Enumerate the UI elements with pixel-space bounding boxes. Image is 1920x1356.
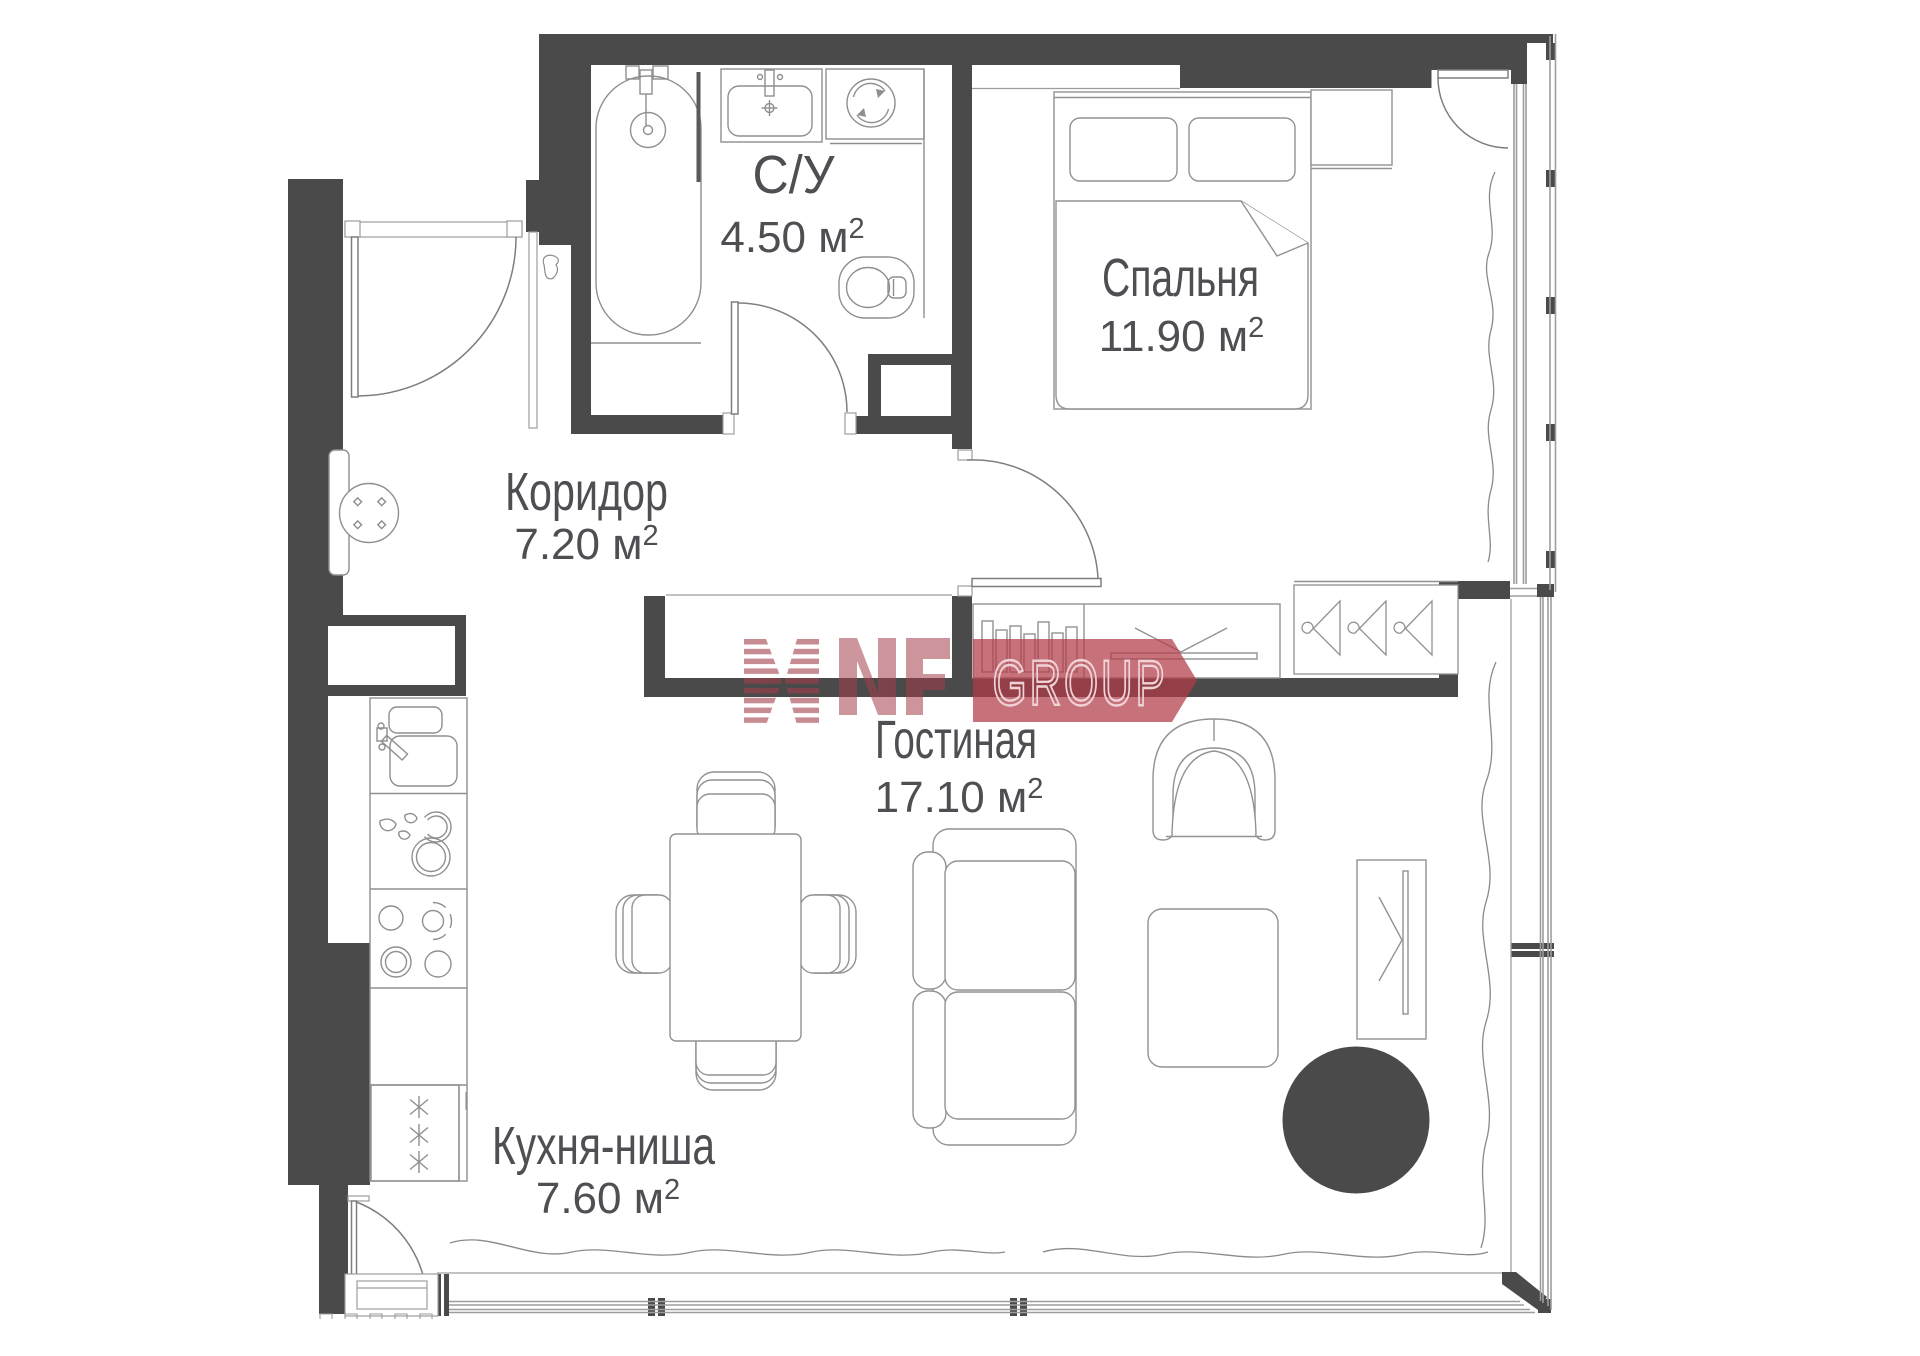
- svg-text:7.20 м2: 7.20 м2: [514, 520, 658, 569]
- svg-text:Коридор: Коридор: [505, 462, 668, 522]
- svg-text:7.60 м2: 7.60 м2: [536, 1174, 680, 1223]
- svg-text:С/У: С/У: [753, 145, 836, 205]
- svg-text:17.10 м2: 17.10 м2: [875, 773, 1044, 822]
- svg-text:Спальня: Спальня: [1102, 248, 1259, 308]
- svg-text:GROUP: GROUP: [993, 647, 1168, 719]
- svg-text:11.90 м2: 11.90 м2: [1099, 312, 1264, 361]
- svg-text:4.50 м2: 4.50 м2: [720, 213, 864, 262]
- svg-text:Кухня-ниша: Кухня-ниша: [492, 1116, 716, 1176]
